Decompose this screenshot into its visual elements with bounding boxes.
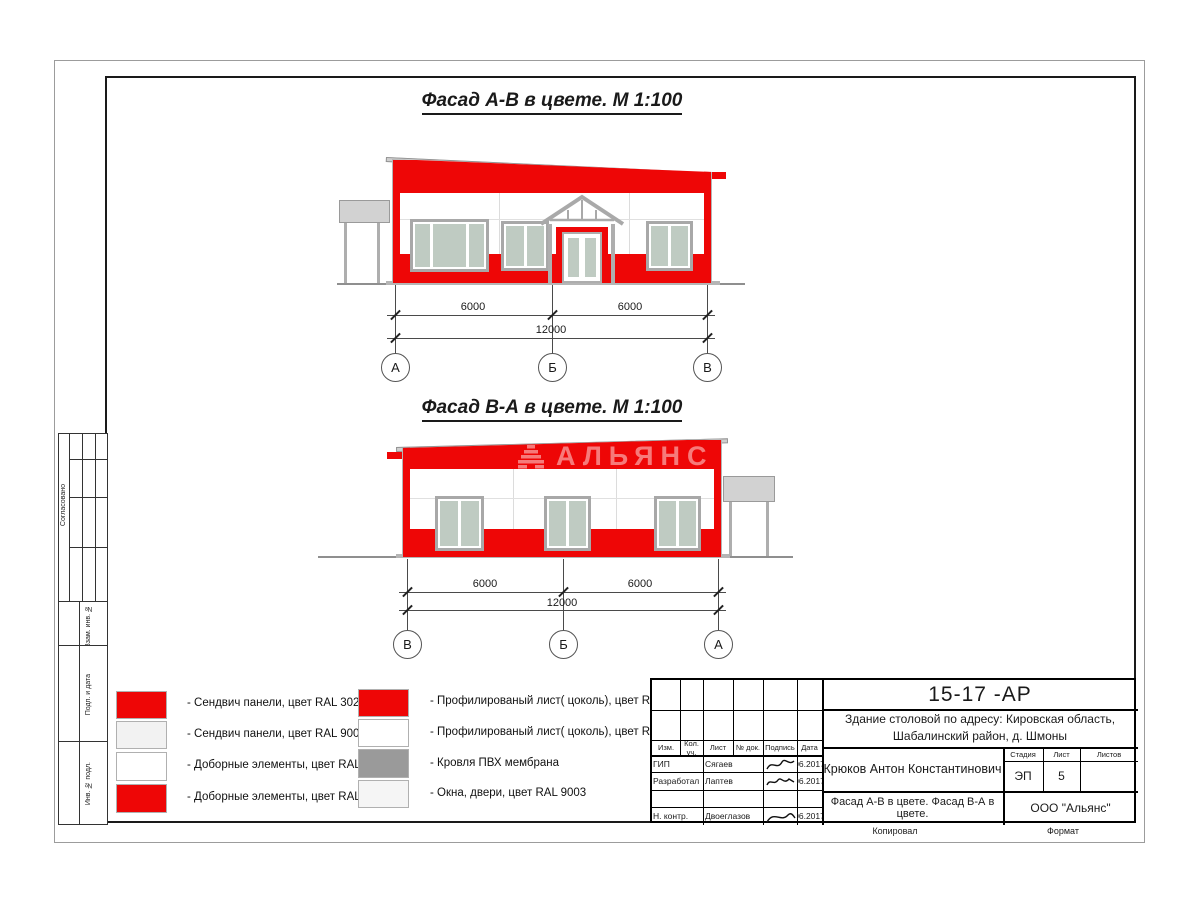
- facade2-roof-edge-element: [387, 452, 403, 459]
- stamp-role: ГИП: [653, 756, 702, 772]
- stamp-stage-label: Стадия: [1003, 747, 1043, 761]
- alliance-logo-icon: [516, 444, 546, 470]
- side-label-replace-inv: Взам. инв. №: [85, 605, 92, 648]
- stamp-date: 06.2017: [797, 808, 822, 824]
- stamp-name: Сягаев: [705, 756, 762, 772]
- facade1-axis-a: А: [381, 353, 410, 382]
- stamp-sheets-value: [1080, 761, 1138, 791]
- entrance-door: [562, 232, 602, 283]
- facade2-window-1: [435, 496, 484, 551]
- facade1-window-1: [410, 219, 489, 272]
- facade1-dim-left: 6000: [433, 301, 513, 313]
- entrance-post: [611, 224, 615, 283]
- facade2-right-corner: [714, 440, 721, 556]
- stamp-role: Н. контр.: [653, 808, 702, 824]
- facade2-title: Фасад В-А в цвете. М 1:100: [412, 397, 692, 419]
- facade1-window-3: [646, 221, 693, 271]
- legend-swatch: [116, 721, 167, 749]
- side-label-agreed: Согласовано: [60, 484, 67, 526]
- stamp-stage-value: ЭП: [1003, 761, 1043, 791]
- stamp-date: 06.2017: [797, 773, 822, 789]
- facade2-side-canopy: [723, 476, 775, 502]
- company-watermark: АЛЬЯНС: [516, 441, 714, 472]
- legend-swatch: [358, 780, 409, 808]
- stamp-project-line2: Шабалинский район, д. Шмоны: [822, 726, 1138, 745]
- facade1-dim-line-12000: [387, 338, 715, 339]
- side-label-sign-date: Подп. и дата: [85, 674, 92, 715]
- title-block: Изм. Кол. уч. Лист № док. Подпись Дата Г…: [650, 678, 1136, 823]
- stamp-col-dok: № док.: [733, 740, 763, 755]
- facade2-axis-v: В: [393, 630, 422, 659]
- facade1-title: Фасад А-В в цвете. М 1:100: [412, 90, 692, 112]
- facade1-window-2: [501, 221, 549, 271]
- stamp-col-podpis: Подпись: [763, 740, 797, 755]
- side-box-inv-orig: Инв. № подл.: [58, 741, 108, 825]
- stamp-sheet-value: 5: [1043, 761, 1080, 791]
- facade2-axis-a: А: [704, 630, 733, 659]
- facade2-dim-left: 6000: [445, 578, 525, 590]
- stamp-subtitle: Фасад А-В в цвете. Фасад В-А в цвете.: [822, 791, 1003, 825]
- legend-swatch: [358, 749, 409, 778]
- legend-swatch: [116, 691, 167, 719]
- side-box-agreed: Согласовано: [58, 433, 108, 603]
- entrance-post: [548, 224, 552, 283]
- facade2-canopy-post: [766, 502, 769, 556]
- facade1-right-corner: [704, 160, 711, 282]
- stamp-col-izm: Изм.: [652, 740, 680, 755]
- stamp-role: Разработал: [653, 773, 702, 789]
- stamp-name: Лаптев: [705, 773, 762, 789]
- signature-icon: [765, 774, 796, 789]
- stamp-sheet-label: Лист: [1043, 747, 1080, 761]
- facade1-canopy-post: [344, 223, 347, 283]
- facade1-roof-edge-element: [710, 172, 726, 179]
- signature-icon: [765, 757, 796, 772]
- facade2-dim-line-12000: [399, 610, 726, 611]
- facade1-axis-b: Б: [538, 353, 567, 382]
- facade2-window-2: [544, 496, 591, 551]
- stamp-col-list: Лист: [703, 740, 733, 755]
- facade2-window-3: [654, 496, 701, 551]
- facade1-dim-right: 6000: [590, 301, 670, 313]
- facade1-side-canopy: [339, 200, 390, 223]
- stamp-date: 06.2017: [797, 756, 822, 772]
- stamp-name: Двоеглазов: [705, 808, 762, 824]
- stamp-sheets-label: Листов: [1080, 747, 1138, 761]
- legend-label: - Сендвич панели, цвет RAL 9003: [187, 728, 366, 740]
- stamp-company: ООО "Альянс": [1003, 791, 1138, 825]
- facade1-axis-v: В: [693, 353, 722, 382]
- facade2-canopy-post: [729, 502, 732, 556]
- legend-swatch: [358, 689, 409, 717]
- legend-swatch: [358, 719, 409, 747]
- facade1-left-corner: [393, 160, 400, 282]
- legend-swatch: [116, 784, 167, 813]
- facade2-dim-total: 12000: [522, 597, 602, 609]
- legend-swatch: [116, 752, 167, 781]
- legend-label: - Сендвич панели, цвет RAL 3020: [187, 697, 366, 709]
- facade2-dim-right: 6000: [600, 578, 680, 590]
- stamp-author: Крюков Антон Константинович: [822, 747, 1003, 791]
- legend-label: - Кровля ПВХ мембрана: [430, 757, 559, 769]
- stamp-col-koluch: Кол. уч.: [680, 740, 703, 755]
- facade1-dim-total: 12000: [511, 324, 591, 336]
- legend-label: - Окна, двери, цвет RAL 9003: [430, 787, 586, 799]
- facade2-axis-b: Б: [549, 630, 578, 659]
- stamp-doc-number: 15-17 -АР: [822, 680, 1138, 709]
- format-label: Формат: [1023, 826, 1103, 836]
- side-box-replace-inv: Взам. инв. №: [58, 601, 108, 647]
- signature-icon: [765, 809, 796, 824]
- facade1-canopy-post: [377, 223, 380, 283]
- watermark-text: АЛЬЯНС: [556, 441, 714, 472]
- side-box-sign-date: Подп. и дата: [58, 645, 108, 743]
- stamp-col-data: Дата: [797, 740, 822, 755]
- facade2-left-corner: [403, 440, 410, 556]
- entrance-gable-canopy: [538, 193, 626, 227]
- copied-label: Копировал: [845, 826, 945, 836]
- side-label-inv-orig: Инв. № подл.: [85, 762, 92, 805]
